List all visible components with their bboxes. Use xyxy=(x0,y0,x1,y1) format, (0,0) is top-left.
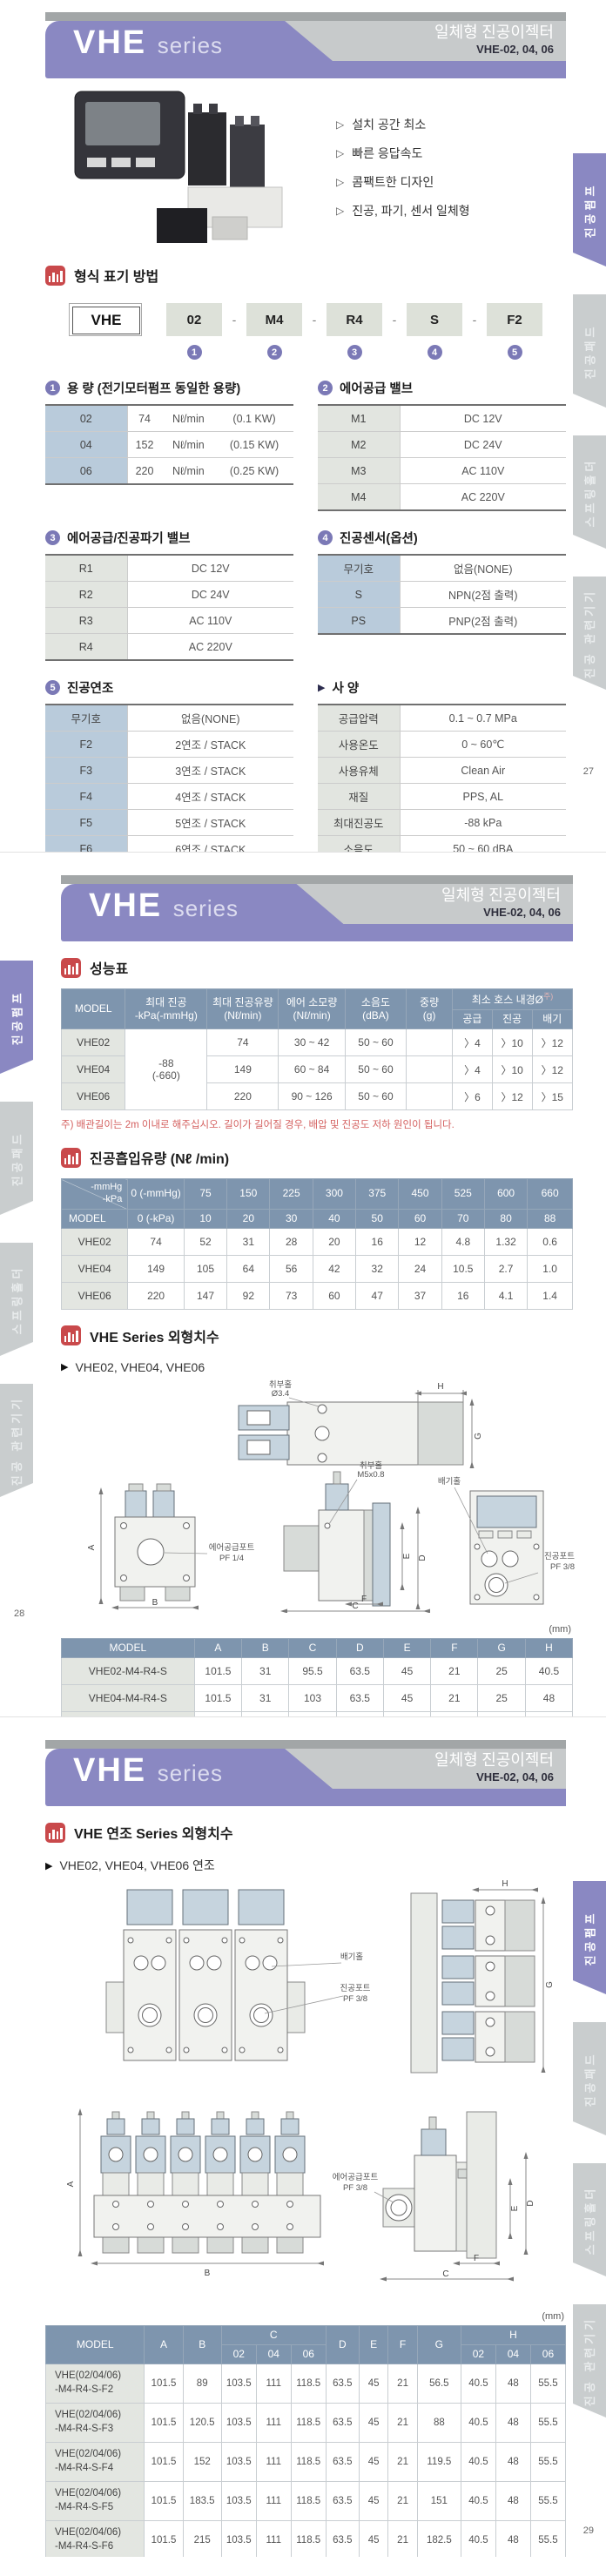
table-cell xyxy=(407,1083,453,1110)
table-cell: 21 xyxy=(431,1711,478,1716)
number-circle-icon: 2 xyxy=(267,345,282,360)
side-tab-spring-holder[interactable]: 스프링홀더 xyxy=(573,435,606,549)
table-cell: 55.5 xyxy=(530,2443,565,2482)
hose-header-note: 주) xyxy=(543,992,553,1001)
tab-label: 스프링홀더 xyxy=(9,1264,25,1334)
table-cell: VHE(02/04/06) -M4-R4-S-F2 xyxy=(46,2364,145,2404)
table-cell: 48 xyxy=(495,2443,530,2482)
table-cell: VHE(02/04/06) -M4-R4-S-F3 xyxy=(46,2404,145,2443)
series-suffix: series xyxy=(173,895,239,921)
technical-drawing-single: 취부홀 Ø3.4 H G A B 에어공급포트 xyxy=(61,1379,580,1613)
table-cell: R2 xyxy=(45,582,127,608)
piping-note: 주) 배관길이는 2m 이내로 해주십시오. 길이가 길어질 경우, 배압 및 … xyxy=(61,1117,573,1131)
table-title: 용 량 (전기모터펌프 동일한 용량) xyxy=(67,379,240,397)
corner-header: -mmHg -kPa xyxy=(62,1179,128,1210)
table-cell: Nℓ/min xyxy=(162,405,216,432)
drawing-label: Ø3.4 xyxy=(272,1389,290,1399)
tab-label: 스프링홀더 xyxy=(582,457,598,527)
table-cell: 5연조 / STACK xyxy=(127,810,293,836)
side-tab-vacuum-equipment[interactable]: 진공 관련기기 xyxy=(573,577,606,690)
capacity-table: 0274Nℓ/min(0.1 KW)04152Nℓ/min(0.15 KW)06… xyxy=(45,404,293,485)
table-cell: 28 xyxy=(270,1228,313,1255)
table-row: 사용유체Clean Air xyxy=(318,758,566,784)
side-tab-vacuum-pad[interactable]: 진공패드 xyxy=(573,2022,606,2135)
table-cell: 04 xyxy=(495,2345,530,2364)
table-row: SNPN(2점 출력) xyxy=(318,582,566,608)
section-suction-flow: 진공흡입유량 (Nℓ /min) xyxy=(61,1147,573,1168)
table-cell: 42 xyxy=(313,1255,355,1282)
table-cell: (0.15 KW) xyxy=(215,432,293,458)
table-cell: 1.4 xyxy=(528,1282,573,1309)
table-cell: 0.6 xyxy=(528,1228,573,1255)
dim-label-g: G xyxy=(545,1981,555,1988)
table-cell: 〉10 xyxy=(492,1056,532,1083)
table-cell: 21 xyxy=(388,2443,417,2482)
table-cell: 450 xyxy=(399,1179,441,1210)
side-tab-index: 진공펌프 진공패드 스프링홀더 진공 관련기기 xyxy=(573,1881,606,2445)
bar-chart-icon xyxy=(45,266,65,286)
table-cell: MODEL xyxy=(62,1638,195,1657)
table-cell: 103.5 xyxy=(221,2521,256,2558)
number-circle-icon: 1 xyxy=(187,345,202,360)
option-tables-grid: 1용 량 (전기모터펌프 동일한 용량) 0274Nℓ/min(0.1 KW)0… xyxy=(45,379,566,852)
table-cell: 배기 xyxy=(532,1010,572,1029)
table-cell: 111 xyxy=(256,2364,291,2404)
suction-flow-table: -mmHg -kPa 0 (-mmHg)75150225300375450525… xyxy=(61,1178,573,1310)
break-valve-block: 3에어공급/진공파기 밸브 R1DC 12VR2DC 24VR3AC 110VR… xyxy=(45,529,293,661)
performance-table: MODEL 최대 진공 -kPa(-mmHg) 최대 진공유량 (Nℓ/min)… xyxy=(61,988,573,1110)
table-cell: 40.5 xyxy=(461,2364,495,2404)
table-row: VHE(02/04/06) -M4-R4-S-F4101.5152103.511… xyxy=(46,2443,566,2482)
side-tab-spring-holder[interactable]: 스프링홀더 xyxy=(0,1243,33,1356)
table-cell: 20 xyxy=(227,1209,270,1228)
catalog-page-3: VHE series 일체형 진공이젝터 VHE-02, 04, 06 VHE … xyxy=(0,1728,606,2557)
series-suffix: series xyxy=(158,32,223,58)
section-title: 형식 표기 방법 xyxy=(74,265,158,286)
tab-label: 진공펌프 xyxy=(582,182,598,238)
table-cell: 105 xyxy=(184,1255,226,1282)
table-cell: 63.5 xyxy=(326,2404,359,2443)
drawing-label: M5x0.8 xyxy=(357,1470,384,1480)
table-cell: 40.5 xyxy=(461,2404,495,2443)
number-circle-icon: 1 xyxy=(45,381,60,395)
spec-table: 공급압력0.1 ~ 0.7 MPa사용온도0 ~ 60℃사용유체Clean Ai… xyxy=(318,704,566,852)
number-circle-icon: 4 xyxy=(428,345,442,360)
technical-drawing-stack-front: 배기홀 진공포트 PF 3/8 xyxy=(45,1879,564,2095)
table-cell: 48 xyxy=(495,2521,530,2558)
arrow-marker-icon: ▶ xyxy=(318,682,325,693)
table-row: F22연조 / STACK xyxy=(45,732,293,758)
drawing-label: 배기홀 xyxy=(340,1952,363,1962)
table-row: M3AC 110V xyxy=(318,458,566,484)
model-code-box: S xyxy=(407,303,462,336)
column-header: 최대 진공 -kPa(-mmHg) xyxy=(125,989,207,1029)
table-cell: 48 xyxy=(525,1684,572,1711)
table-cell: 63.5 xyxy=(336,1657,383,1684)
column-header: E xyxy=(359,2326,387,2364)
table-cell: 89 xyxy=(183,2364,221,2404)
table-cell: 4연조 / STACK xyxy=(127,784,293,810)
table-cell: 45 xyxy=(383,1684,431,1711)
table-cell: DC 24V xyxy=(127,582,293,608)
table-row: VHE(02/04/06) -M4-R4-S-F3101.5120.5103.5… xyxy=(46,2404,566,2443)
table-cell: 151 xyxy=(417,2482,461,2521)
code-box-label: VHE xyxy=(72,307,140,334)
dimension-table: MODELABCDEFGH VHE02-M4-R4-S101.53195.563… xyxy=(61,1638,573,1717)
table-cell: 149 xyxy=(128,1255,185,1282)
series-name: VHE xyxy=(73,1752,146,1789)
table-row: F44연조 / STACK xyxy=(45,784,293,810)
technical-drawing-stack-manifold: A B 에어공급포트 PF 3/8 E D F xyxy=(45,2105,564,2300)
code-dash: - xyxy=(382,303,407,336)
side-tab-index: 진공펌프 진공패드 스프링홀더 진공 관련기기 xyxy=(573,153,606,718)
product-photo xyxy=(59,86,296,248)
side-tab-vacuum-equipment[interactable]: 진공 관련기기 xyxy=(0,1384,33,1497)
table-cell xyxy=(407,1029,453,1056)
table-cell: 50 xyxy=(356,1209,399,1228)
table-row: 04152Nℓ/min(0.15 KW) xyxy=(45,432,293,458)
table-row: VHE(02/04/06) -M4-R4-S-F5101.5183.5103.5… xyxy=(46,2482,566,2521)
dim-label-a: A xyxy=(87,1544,97,1550)
tab-label: 진공 관련기기 xyxy=(582,2316,598,2405)
table-cell: 63.5 xyxy=(326,2482,359,2521)
table-cell: 02 xyxy=(461,2345,495,2364)
table-cell: 〉12 xyxy=(532,1029,572,1056)
side-tab-spring-holder[interactable]: 스프링홀더 xyxy=(573,2163,606,2276)
table-cell: 88 xyxy=(528,1209,573,1228)
table-cell: 152 xyxy=(127,432,161,458)
stack-drawings-top: 배기홀 진공포트 PF 3/8 xyxy=(45,1879,566,2100)
table-row: F66연조 / STACK xyxy=(45,836,293,853)
table-cell: 150 xyxy=(227,1179,270,1210)
stack-dimension-table: MODEL A B C D E F G H 020406020406 VHE(0… xyxy=(45,2325,566,2557)
table-cell: 111 xyxy=(256,2443,291,2482)
table-cell: 118.5 xyxy=(291,2482,326,2521)
table-cell: 31 xyxy=(242,1711,289,1716)
banner-top-strip xyxy=(61,875,573,884)
table-cell: 118.5 xyxy=(291,2443,326,2482)
table-cell: 21 xyxy=(431,1657,478,1684)
table-cell: F2 xyxy=(45,732,127,758)
table-cell: C xyxy=(289,1638,337,1657)
table-cell: VHE06 xyxy=(62,1083,125,1110)
table-cell: 220 xyxy=(207,1083,279,1110)
table-cell: 110.5 xyxy=(289,1711,337,1716)
table-row: VHE06-M4-R4-S101.531110.563.545212555.5 xyxy=(62,1711,573,1716)
model-code-box: 02 xyxy=(166,303,222,336)
table-cell: 63.5 xyxy=(326,2364,359,2404)
number-circle-icon: 5 xyxy=(508,345,522,360)
table-row: 무기호없음(NONE) xyxy=(318,555,566,582)
table-cell: 52 xyxy=(184,1228,226,1255)
table-cell: 90 ~ 126 xyxy=(279,1083,345,1110)
feature-item: ▷설치 공간 최소 xyxy=(336,116,470,133)
tab-label: 진공패드 xyxy=(582,2051,598,2107)
table-cell: 88 xyxy=(417,2404,461,2443)
table-cell: 55.5 xyxy=(530,2521,565,2558)
table-cell: 25 xyxy=(478,1657,526,1684)
table-cell: 사용유체 xyxy=(318,758,400,784)
table-cell: 225 xyxy=(270,1179,313,1210)
table-row: 0274Nℓ/min(0.1 KW) xyxy=(45,405,293,432)
column-header-hose: 최소 호스 내경Ø주) xyxy=(453,989,573,1010)
side-tab-vacuum-pad[interactable]: 진공패드 xyxy=(573,294,606,408)
table-cell: 119.5 xyxy=(417,2443,461,2482)
table-cell: VHE02 xyxy=(62,1029,125,1056)
table-row: M2DC 24V xyxy=(318,432,566,458)
air-supply-valve-table: M1DC 12VM2DC 24VM3AC 110VM4AC 220V xyxy=(318,404,566,511)
tab-label: 진공패드 xyxy=(582,323,598,379)
drawing-label: 에어공급포트 xyxy=(209,1543,255,1553)
dim-label-d: D xyxy=(418,1554,428,1561)
table-row: 06220Nℓ/min(0.25 KW) xyxy=(45,458,293,485)
table-cell: 06 xyxy=(45,458,127,485)
table-cell: VHE02-M4-R4-S xyxy=(62,1657,195,1684)
bar-chart-icon xyxy=(61,958,81,978)
model-code-unit: S 4 xyxy=(407,303,462,360)
table-cell: PPS, AL xyxy=(400,784,566,810)
table-cell: 220 xyxy=(127,458,161,485)
section-performance: 성능표 xyxy=(61,957,573,978)
number-circle-icon: 4 xyxy=(318,530,333,545)
side-tab-vacuum-pump[interactable]: 진공펌프 xyxy=(573,1881,606,1994)
column-header: B xyxy=(183,2326,221,2364)
table-row: PSPNP(2점 출력) xyxy=(318,608,566,635)
product-type-title: 일체형 진공이젝터 xyxy=(434,23,554,43)
dim-label-h: H xyxy=(502,1879,508,1889)
column-header: G xyxy=(417,2326,461,2364)
page-number: 27 xyxy=(583,766,594,777)
table-cell: 〉4 xyxy=(453,1029,493,1056)
table-cell: 〉12 xyxy=(492,1083,532,1110)
table-cell: F3 xyxy=(45,758,127,784)
side-tab-vacuum-pad[interactable]: 진공패드 xyxy=(0,1102,33,1215)
hose-header-text: 최소 호스 내경Ø xyxy=(472,994,543,1006)
side-tab-vacuum-pump[interactable]: 진공펌프 xyxy=(573,153,606,266)
table-cell: NPN(2점 출력) xyxy=(400,582,566,608)
table-cell: 1.0 xyxy=(528,1255,573,1282)
model-code-box-series: VHE xyxy=(69,303,142,336)
table-cell: 147 xyxy=(184,1282,226,1309)
table-cell: 3연조 / STACK xyxy=(127,758,293,784)
table-cell: 63.5 xyxy=(326,2521,359,2558)
table-cell: 공급 xyxy=(453,1010,493,1029)
table-cell: 16 xyxy=(441,1282,484,1309)
table-cell: VHE(02/04/06) -M4-R4-S-F5 xyxy=(46,2482,145,2521)
tab-label: 진공 관련기기 xyxy=(582,588,598,678)
tab-label: 진공패드 xyxy=(9,1130,25,1186)
table-cell: VHE06-M4-R4-S xyxy=(62,1711,195,1716)
column-header: 에어 소모량 (Nℓ/min) xyxy=(279,989,345,1029)
table-cell: 48 xyxy=(495,2482,530,2521)
table-cell: 0.1 ~ 0.7 MPa xyxy=(400,705,566,732)
series-title: VHE series xyxy=(73,26,223,59)
table-cell: 600 xyxy=(484,1179,527,1210)
stack-table-block: 5진공연조 무기호없음(NONE)F22연조 / STACKF33연조 / ST… xyxy=(45,678,293,852)
table-row: R3AC 110V xyxy=(45,608,293,634)
feature-text: 빠른 응답속도 xyxy=(352,145,422,162)
table-cell: 60 xyxy=(399,1209,441,1228)
table-row: R2DC 24V xyxy=(45,582,293,608)
table-row: VHE062201479273604737164.11.4 xyxy=(62,1282,573,1309)
table-cell: 215 xyxy=(183,2521,221,2558)
table-cell: 101.5 xyxy=(145,2482,183,2521)
section-stack-dimensions: VHE 연조 Series 외형치수 xyxy=(45,1822,566,1843)
table-cell: AC 110V xyxy=(400,458,566,484)
table-cell: 74 xyxy=(128,1228,185,1255)
triangle-bullet-icon: ▷ xyxy=(336,147,344,159)
table-cell: H xyxy=(525,1638,572,1657)
dim-label-b: B xyxy=(152,1598,158,1608)
dim-label-c: C xyxy=(352,1602,358,1611)
banner-top-strip xyxy=(45,12,566,21)
table-row: 사용온도0 ~ 60℃ xyxy=(318,732,566,758)
table-row: VHE04-M4-R4-S101.53110363.545212548 xyxy=(62,1684,573,1711)
product-type-title: 일체형 진공이젝터 xyxy=(434,1750,554,1770)
table-cell: 〉12 xyxy=(532,1056,572,1083)
dim-label-g: G xyxy=(474,1432,483,1439)
table-cell: Clean Air xyxy=(400,758,566,784)
table-cell: A xyxy=(194,1638,242,1657)
table-row: 공급압력0.1 ~ 0.7 MPa xyxy=(318,705,566,732)
table-cell: 04 xyxy=(256,2345,291,2364)
bar-chart-icon xyxy=(61,1148,81,1168)
bar-chart-icon xyxy=(61,1325,81,1345)
table-cell: M2 xyxy=(318,432,400,458)
table-cell: 50 ~ 60 xyxy=(345,1056,406,1083)
table-cell: 45 xyxy=(359,2482,387,2521)
code-dash: - xyxy=(222,303,246,336)
section-model-designation: 형식 표기 방법 xyxy=(45,265,566,286)
feature-item: ▷진공, 파기, 센서 일체형 xyxy=(336,202,470,219)
table-cell: F6 xyxy=(45,836,127,853)
table-cell: 40.5 xyxy=(461,2521,495,2558)
table-cell: 30 xyxy=(270,1209,313,1228)
side-tab-vacuum-pump[interactable]: 진공펌프 xyxy=(0,961,33,1074)
table-cell: AC 220V xyxy=(400,484,566,511)
model-code-unit: VHE xyxy=(69,303,142,336)
table-cell: -88 kPa xyxy=(400,810,566,836)
table-title: 진공센서(옵션) xyxy=(340,529,418,547)
table-cell: 47 xyxy=(356,1282,399,1309)
table-row: VHE(02/04/06) -M4-R4-S-F6101.5215103.511… xyxy=(46,2521,566,2558)
table-cell: 103.5 xyxy=(221,2404,256,2443)
table-cell: AC 220V xyxy=(127,634,293,661)
table-cell: 37 xyxy=(399,1282,441,1309)
table-cell: 118.5 xyxy=(291,2521,326,2558)
column-header: D xyxy=(326,2326,359,2364)
table-cell: 55.5 xyxy=(530,2364,565,2404)
table-title: 사 양 xyxy=(332,678,359,697)
table-cell: VHE02 xyxy=(62,1228,128,1255)
table-cell: 55.5 xyxy=(525,1711,572,1716)
table-cell: 103.5 xyxy=(221,2364,256,2404)
table-cell: 48 xyxy=(495,2364,530,2404)
table-cell: E xyxy=(383,1638,431,1657)
table-cell: 40.5 xyxy=(461,2443,495,2482)
table-cell: 118.5 xyxy=(291,2364,326,2404)
series-suffix: series xyxy=(158,1760,223,1786)
model-range: VHE-02, 04, 06 xyxy=(434,1770,554,1784)
table-cell: Nℓ/min xyxy=(162,458,216,485)
stack-drawings-bottom: A B 에어공급포트 PF 3/8 E D F xyxy=(45,2105,566,2304)
model-code-unit: M4 2 xyxy=(246,303,302,360)
table-cell: 92 xyxy=(227,1282,270,1309)
vacuum-sensor-table: 무기호없음(NONE)SNPN(2점 출력)PSPNP(2점 출력) xyxy=(318,554,566,635)
table-row: M1DC 12V xyxy=(318,405,566,432)
table-cell: DC 24V xyxy=(400,432,566,458)
table-cell: 〉10 xyxy=(492,1029,532,1056)
table-cell: 4.8 xyxy=(441,1228,484,1255)
table-cell: 101.5 xyxy=(194,1684,242,1711)
table-cell: 10 xyxy=(184,1209,226,1228)
table-cell: 31 xyxy=(227,1228,270,1255)
table-cell: 6연조 / STACK xyxy=(127,836,293,853)
table-cell: (0.25 KW) xyxy=(215,458,293,485)
tab-label: 진공펌프 xyxy=(582,1910,598,1966)
table-cell: VHE04 xyxy=(62,1255,128,1282)
table-cell: 40 xyxy=(313,1209,355,1228)
table-cell: 31 xyxy=(242,1657,289,1684)
table-cell: 45 xyxy=(359,2521,387,2558)
drawing-label: PF 3/8 xyxy=(343,1994,367,2004)
table-cell: 95.5 xyxy=(289,1657,337,1684)
table-cell: 118.5 xyxy=(291,2404,326,2443)
feature-item: ▷빠른 응답속도 xyxy=(336,145,470,162)
arrow-marker-icon: ▶ xyxy=(61,1361,68,1372)
column-header: 소음도 (dBA) xyxy=(345,989,406,1029)
table-cell: M1 xyxy=(318,405,400,432)
feature-text: 콤팩트한 디자인 xyxy=(352,173,434,191)
table-row: VHE02745231282016124.81.320.6 xyxy=(62,1228,573,1255)
table-cell: 무기호 xyxy=(45,705,127,732)
table-cell: R4 xyxy=(45,634,127,661)
table-cell: 111 xyxy=(256,2482,291,2521)
table-cell: 02 xyxy=(45,405,127,432)
table-cell: 70 xyxy=(441,1209,484,1228)
table-cell: 45 xyxy=(383,1657,431,1684)
table-cell: D xyxy=(336,1638,383,1657)
section-dimensions: VHE Series 외형치수 xyxy=(61,1325,573,1346)
bar-chart-icon xyxy=(45,1823,65,1843)
table-cell: 40.5 xyxy=(525,1657,572,1684)
model-code-box: R4 xyxy=(327,303,382,336)
table-title: 에어공급/진공파기 밸브 xyxy=(67,529,190,547)
side-tab-vacuum-equipment[interactable]: 진공 관련기기 xyxy=(573,2304,606,2418)
dim-label-e: E xyxy=(510,2205,520,2211)
table-cell: 101.5 xyxy=(145,2364,183,2404)
column-header: 최대 진공유량 (Nℓ/min) xyxy=(207,989,279,1029)
section-title: 성능표 xyxy=(90,957,128,978)
table-row: R1DC 12V xyxy=(45,555,293,582)
table-row: VHE02-M4-R4-S101.53195.563.545212540.5 xyxy=(62,1657,573,1684)
product-type-title: 일체형 진공이젝터 xyxy=(441,886,561,906)
table-cell: 55.5 xyxy=(530,2404,565,2443)
models-subtitle: ▶VHE02, VHE04, VHE06 xyxy=(61,1360,573,1374)
table-title: 진공연조 xyxy=(67,678,113,697)
table-cell: VHE(02/04/06) -M4-R4-S-F4 xyxy=(46,2443,145,2482)
table-cell: F4 xyxy=(45,784,127,810)
code-dash: - xyxy=(462,303,487,336)
model-code-unit: 02 1 xyxy=(166,303,222,360)
model-header: MODEL xyxy=(62,1209,128,1228)
table-cell: 75 xyxy=(184,1179,226,1210)
table-cell: 06 xyxy=(530,2345,565,2364)
table-cell: 30 ~ 42 xyxy=(279,1029,345,1056)
table-row: 소음도50 ~ 60 dBA xyxy=(318,836,566,853)
table-cell: 660 xyxy=(528,1179,573,1210)
table-cell: 32 xyxy=(356,1255,399,1282)
